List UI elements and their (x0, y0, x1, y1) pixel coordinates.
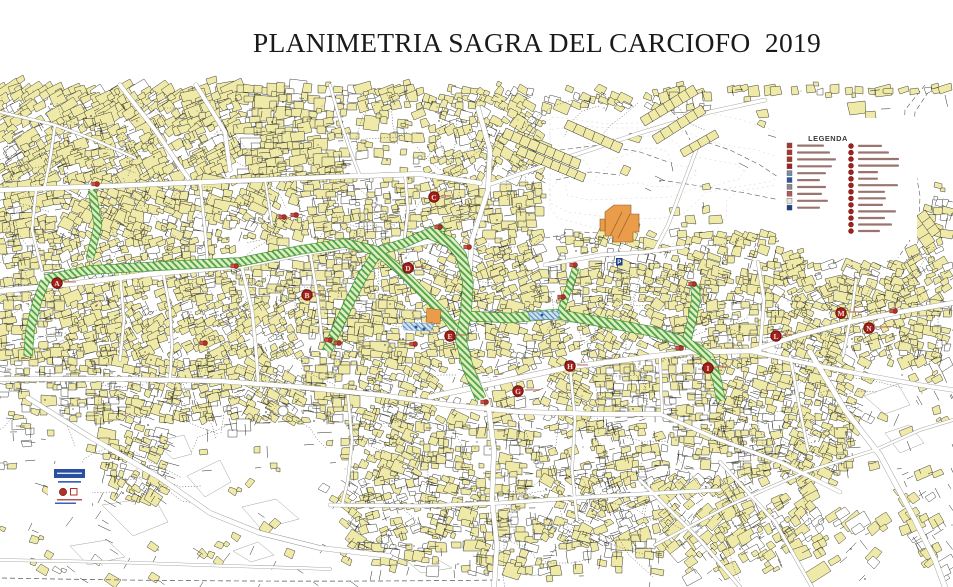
svg-text:P: P (617, 260, 621, 266)
